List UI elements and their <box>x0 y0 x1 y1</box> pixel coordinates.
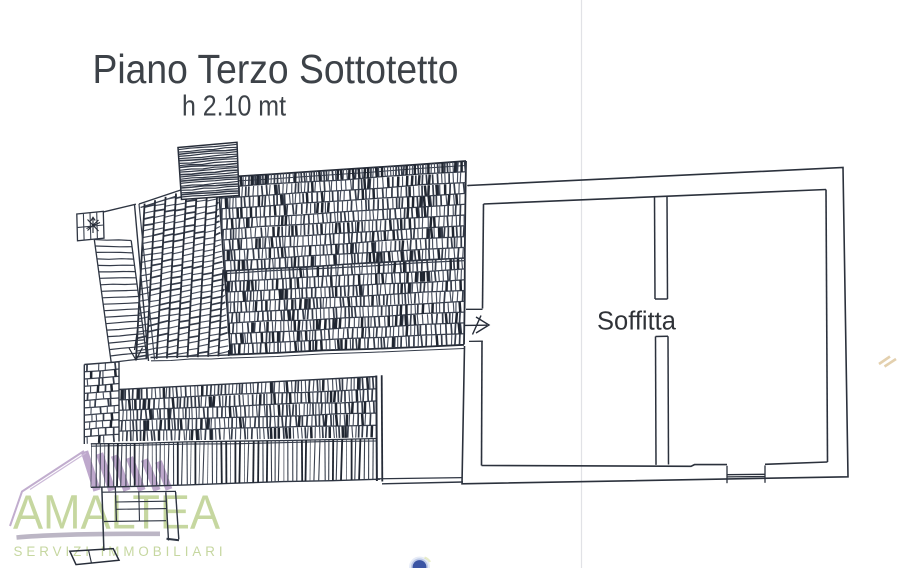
svg-text:Piano Terzo Sottotetto: Piano Terzo Sottotetto <box>93 46 459 92</box>
svg-text:Soffitta: Soffitta <box>597 308 677 336</box>
svg-text:h 2.10 mt: h 2.10 mt <box>182 91 286 123</box>
svg-text:SERVIZI IMMOBILIARI: SERVIZI IMMOBILIARI <box>14 544 227 559</box>
